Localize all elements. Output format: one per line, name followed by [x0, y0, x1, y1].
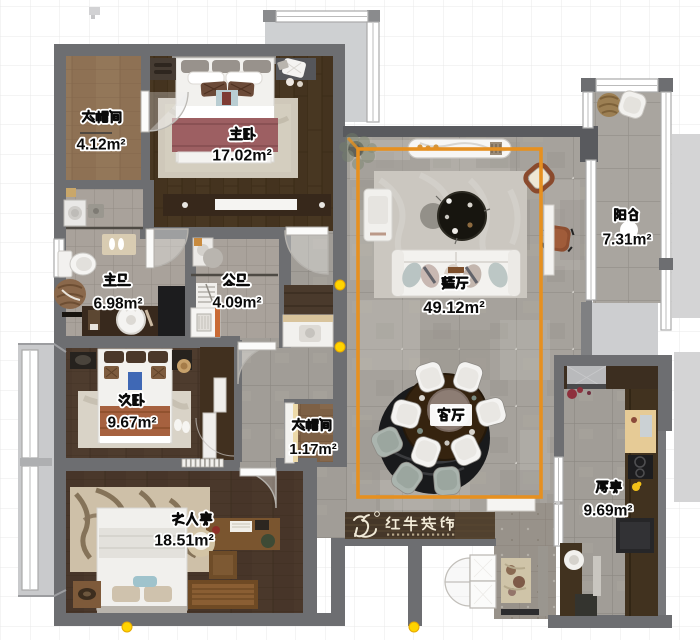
svg-text:9.67m²: 9.67m² [107, 414, 156, 431]
svg-text:17.02m²: 17.02m² [212, 148, 272, 165]
svg-text:9.69m²: 9.69m² [583, 502, 632, 519]
svg-text:1.17m²: 1.17m² [289, 441, 337, 458]
svg-text:4.09m²: 4.09m² [212, 294, 261, 311]
svg-text:18.51m²: 18.51m² [154, 533, 214, 550]
svg-text:7.31m²: 7.31m² [602, 231, 651, 248]
svg-text:6.98m²: 6.98m² [93, 295, 142, 312]
svg-text:49.12m²: 49.12m² [423, 299, 485, 317]
svg-text:4.12m²: 4.12m² [76, 136, 125, 153]
